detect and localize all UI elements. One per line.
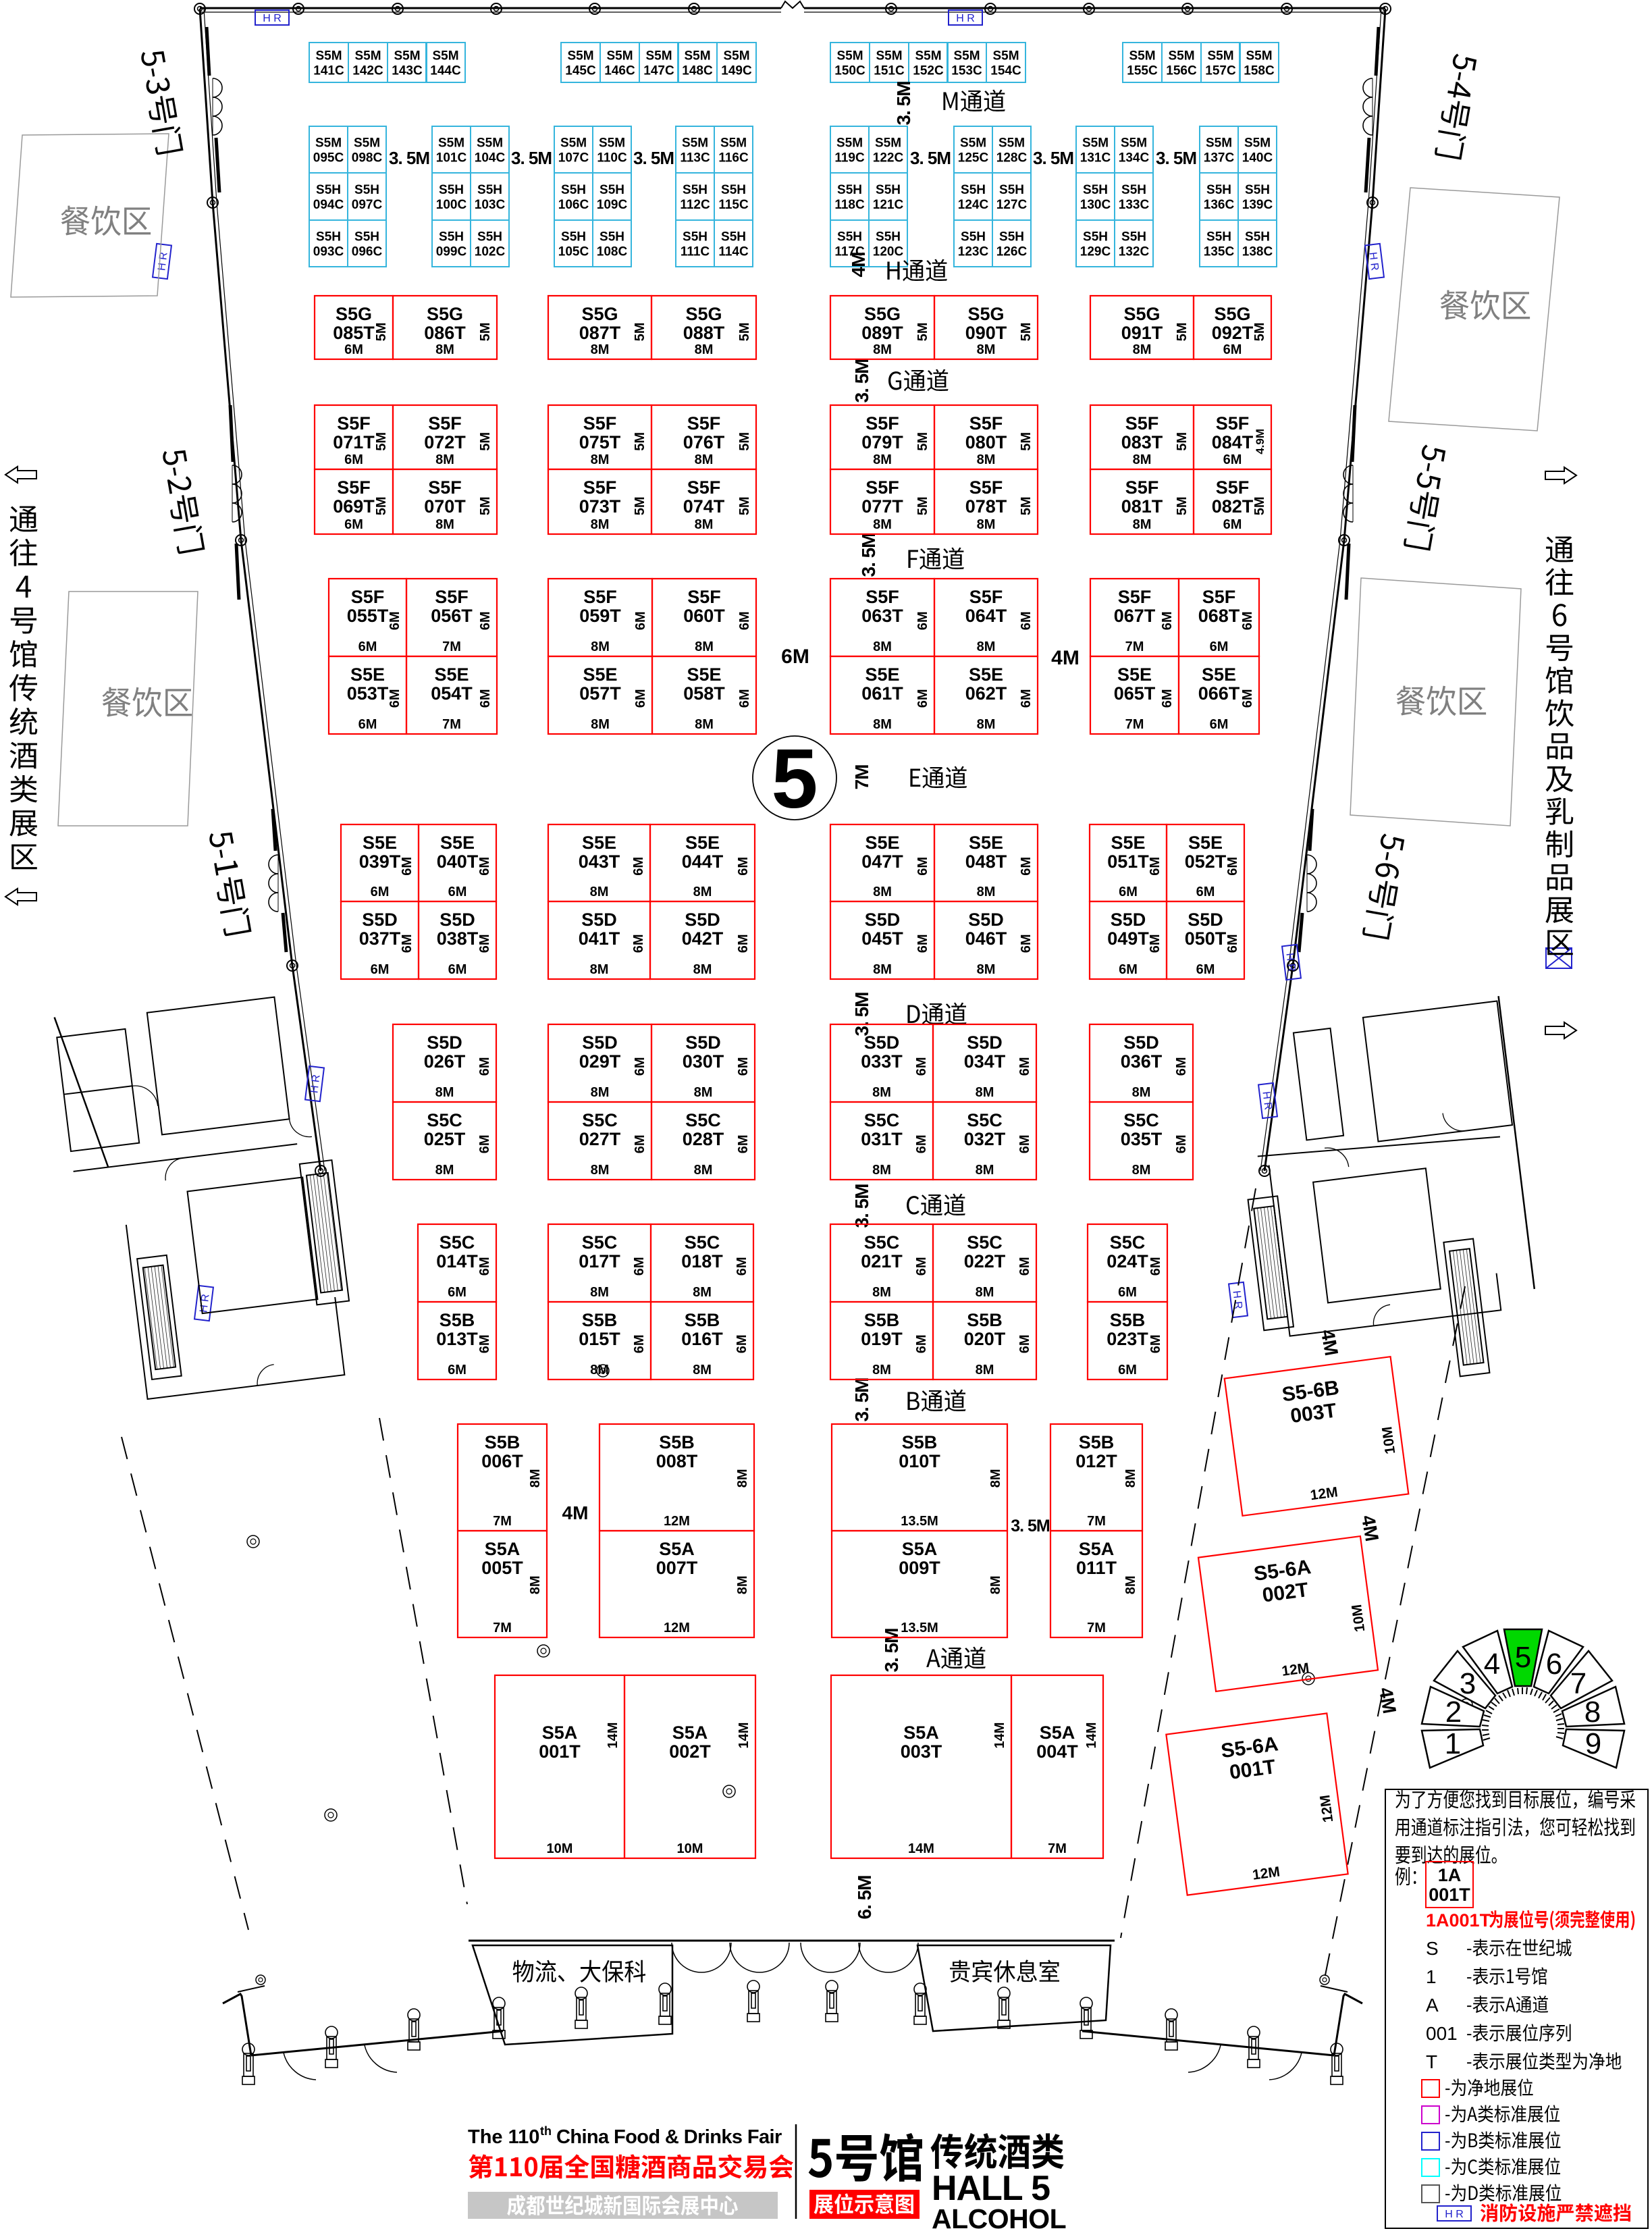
svg-text:8M: 8M	[591, 717, 610, 732]
svg-text:5M: 5M	[1252, 323, 1267, 342]
svg-text:108C: 108C	[597, 245, 628, 259]
svg-text:S5M: S5M	[477, 136, 503, 151]
svg-text:6M: 6M	[1174, 1134, 1189, 1153]
svg-text:143C: 143C	[392, 64, 423, 78]
svg-text:S5H: S5H	[683, 230, 708, 244]
svg-text:156C: 156C	[1166, 64, 1197, 78]
svg-text:056T: 056T	[431, 606, 473, 626]
svg-text:081T: 081T	[1121, 496, 1163, 517]
svg-text:4: 4	[1484, 1648, 1500, 1681]
svg-text:053T: 053T	[347, 683, 389, 704]
svg-text:057T: 057T	[579, 683, 621, 704]
svg-text:S5G: S5G	[581, 304, 618, 324]
svg-text:S5H: S5H	[721, 183, 746, 197]
svg-text:6M: 6M	[1160, 689, 1175, 708]
svg-text:S5E: S5E	[865, 664, 899, 685]
svg-text:S5F: S5F	[865, 587, 899, 607]
svg-text:S5H: S5H	[1206, 230, 1231, 244]
svg-text:S5F: S5F	[1118, 587, 1152, 607]
svg-text:122C: 122C	[873, 151, 904, 165]
svg-text:5M: 5M	[915, 496, 930, 515]
svg-text:5M: 5M	[915, 432, 930, 451]
svg-text:S5B: S5B	[685, 1310, 720, 1330]
svg-text:024T: 024T	[1107, 1251, 1148, 1271]
svg-text:S5M: S5M	[1206, 136, 1232, 151]
svg-text:8M: 8M	[695, 342, 714, 357]
svg-text:8M: 8M	[873, 885, 892, 899]
svg-text:6M: 6M	[1019, 689, 1034, 708]
svg-text:3. 5M: 3. 5M	[851, 1184, 872, 1228]
svg-text:074T: 074T	[683, 496, 725, 517]
svg-text:047T: 047T	[861, 851, 903, 872]
svg-text:S5M: S5M	[315, 136, 342, 151]
svg-text:8M: 8M	[591, 1163, 610, 1178]
svg-text:S5M: S5M	[560, 136, 587, 151]
svg-text:6M: 6M	[1196, 962, 1215, 977]
svg-text:S5H: S5H	[1245, 230, 1270, 244]
svg-text:10M: 10M	[677, 1841, 703, 1856]
svg-text:6M: 6M	[632, 1334, 647, 1353]
svg-text:S5F: S5F	[865, 477, 899, 498]
svg-text:6M: 6M	[915, 611, 930, 630]
svg-text:6M: 6M	[914, 1134, 929, 1153]
svg-text:134C: 134C	[1119, 151, 1150, 165]
svg-text:S5M: S5M	[599, 136, 625, 151]
svg-text:S5C: S5C	[427, 1110, 462, 1130]
svg-text:015T: 015T	[579, 1329, 620, 1349]
svg-text:6M: 6M	[736, 934, 751, 953]
svg-text:S5F: S5F	[865, 413, 899, 434]
svg-text:155C: 155C	[1127, 64, 1158, 78]
svg-text:S5E: S5E	[1111, 833, 1145, 853]
svg-text:5: 5	[1515, 1641, 1531, 1674]
svg-text:032T: 032T	[964, 1129, 1006, 1149]
svg-text:6M: 6M	[388, 611, 402, 630]
svg-text:S5M: S5M	[1246, 49, 1272, 63]
svg-text:011T: 011T	[1076, 1558, 1117, 1578]
svg-text:S5B: S5B	[1110, 1310, 1146, 1330]
svg-text:S5F: S5F	[969, 413, 1003, 434]
svg-text:5M: 5M	[478, 496, 493, 515]
svg-text:3. 5M: 3. 5M	[1033, 148, 1073, 168]
svg-text:13.5M: 13.5M	[901, 1514, 938, 1529]
svg-text:8M: 8M	[988, 1469, 1003, 1488]
svg-text:7M: 7M	[1125, 717, 1144, 732]
svg-text:129C: 129C	[1080, 245, 1111, 259]
svg-text:4.9M: 4.9M	[1254, 429, 1267, 454]
svg-text:S5H: S5H	[999, 230, 1024, 244]
svg-text:S5G: S5G	[336, 304, 372, 324]
svg-text:6M: 6M	[371, 962, 390, 977]
svg-text:039T: 039T	[359, 851, 401, 872]
svg-text:S5H: S5H	[439, 230, 464, 244]
svg-text:6M: 6M	[737, 689, 752, 708]
svg-text:S5B: S5B	[902, 1432, 938, 1452]
svg-text:S5M: S5M	[875, 136, 901, 151]
svg-text:025T: 025T	[424, 1129, 466, 1149]
svg-text:6M: 6M	[633, 689, 648, 708]
svg-text:080T: 080T	[965, 432, 1007, 452]
svg-text:5M: 5M	[633, 323, 647, 342]
svg-text:014T: 014T	[436, 1251, 478, 1271]
svg-text:S5H: S5H	[961, 230, 986, 244]
svg-text:123C: 123C	[958, 245, 989, 259]
svg-text:135C: 135C	[1204, 245, 1235, 259]
svg-text:S5H: S5H	[561, 230, 586, 244]
svg-text:S5A: S5A	[903, 1723, 939, 1743]
svg-text:S5H: S5H	[1245, 183, 1270, 197]
svg-text:5M: 5M	[633, 496, 647, 515]
svg-text:S5A: S5A	[902, 1539, 938, 1559]
svg-text:6M: 6M	[477, 857, 492, 876]
svg-text:150C: 150C	[834, 64, 865, 78]
svg-text:102C: 102C	[475, 245, 506, 259]
svg-text:S5M: S5M	[354, 49, 381, 63]
svg-text:14M: 14M	[908, 1841, 934, 1856]
svg-text:079T: 079T	[861, 432, 903, 452]
svg-text:S5M: S5M	[438, 136, 464, 151]
svg-text:6M: 6M	[1017, 1334, 1032, 1353]
svg-text:6M: 6M	[1148, 1334, 1163, 1353]
svg-text:010T: 010T	[899, 1451, 940, 1471]
svg-text:001T: 001T	[1429, 1885, 1470, 1905]
svg-text:6M: 6M	[448, 885, 467, 899]
svg-text:S5H: S5H	[1083, 183, 1108, 197]
svg-text:6M: 6M	[400, 857, 415, 876]
svg-text:058T: 058T	[683, 683, 725, 704]
svg-text:076T: 076T	[683, 432, 725, 452]
svg-text:031T: 031T	[861, 1129, 903, 1149]
svg-text:8: 8	[1584, 1696, 1601, 1729]
svg-text:S5F: S5F	[1216, 413, 1250, 434]
svg-text:H R: H R	[156, 251, 169, 271]
svg-text:5M: 5M	[633, 432, 647, 451]
svg-text:146C: 146C	[604, 64, 635, 78]
svg-text:S5E: S5E	[350, 664, 385, 685]
svg-text:6M: 6M	[344, 517, 363, 532]
svg-text:043T: 043T	[579, 851, 620, 872]
svg-text:6M: 6M	[1019, 934, 1034, 953]
svg-text:7M: 7M	[851, 765, 872, 790]
svg-text:S5C: S5C	[967, 1232, 1003, 1253]
svg-text:8M: 8M	[977, 962, 996, 977]
svg-text:S5D: S5D	[581, 910, 617, 930]
svg-text:104C: 104C	[475, 151, 506, 165]
svg-text:130C: 130C	[1080, 198, 1111, 212]
svg-text:S5D: S5D	[968, 910, 1004, 930]
svg-text:S5M: S5M	[567, 49, 593, 63]
svg-text:111C: 111C	[681, 245, 710, 259]
svg-text:118C: 118C	[834, 198, 865, 212]
svg-text:066T: 066T	[1198, 683, 1240, 704]
svg-text:S5C: S5C	[582, 1110, 618, 1130]
svg-text:8M: 8M	[977, 452, 996, 467]
svg-text:6M: 6M	[735, 1334, 749, 1353]
svg-text:6M: 6M	[477, 1334, 492, 1353]
svg-text:5M: 5M	[1175, 432, 1190, 451]
svg-text:S5G: S5G	[967, 304, 1004, 324]
svg-text:095C: 095C	[313, 151, 344, 165]
svg-text:S5E: S5E	[440, 833, 475, 853]
svg-text:5M: 5M	[1019, 432, 1034, 451]
svg-text:S5C: S5C	[864, 1110, 900, 1130]
svg-text:6M: 6M	[1017, 1057, 1032, 1076]
svg-text:5M: 5M	[1019, 496, 1034, 515]
svg-text:14M: 14M	[992, 1723, 1007, 1749]
svg-text:013T: 013T	[436, 1329, 478, 1349]
svg-text:12M: 12M	[664, 1514, 690, 1529]
svg-text:138C: 138C	[1242, 245, 1273, 259]
svg-text:6M: 6M	[1223, 452, 1242, 467]
svg-text:S5M: S5M	[1082, 136, 1109, 151]
svg-text:044T: 044T	[682, 851, 724, 872]
svg-text:048T: 048T	[965, 851, 1007, 872]
svg-text:S5M: S5M	[1207, 49, 1233, 63]
svg-text:147C: 147C	[643, 64, 674, 78]
svg-text:018T: 018T	[681, 1251, 723, 1271]
svg-text:084T: 084T	[1212, 432, 1254, 452]
svg-text:3. 5M: 3. 5M	[893, 81, 914, 125]
svg-text:131C: 131C	[1080, 151, 1111, 165]
svg-text:8M: 8M	[528, 1469, 543, 1488]
svg-text:8M: 8M	[435, 517, 454, 532]
svg-text:012T: 012T	[1075, 1451, 1117, 1471]
svg-text:096C: 096C	[352, 245, 383, 259]
svg-text:054T: 054T	[431, 683, 473, 704]
svg-text:H R: H R	[1283, 952, 1297, 972]
svg-text:8M: 8M	[976, 1363, 994, 1377]
svg-text:S5B: S5B	[864, 1310, 900, 1330]
svg-text:3: 3	[1460, 1667, 1476, 1700]
svg-text:S5D: S5D	[1188, 910, 1223, 930]
svg-text:8M: 8M	[1132, 1163, 1151, 1178]
svg-text:6: 6	[1546, 1648, 1562, 1681]
svg-text:S5A: S5A	[659, 1539, 695, 1559]
svg-text:033T: 033T	[861, 1051, 903, 1072]
svg-text:8M: 8M	[977, 639, 996, 654]
svg-text:106C: 106C	[558, 198, 589, 212]
svg-text:4M: 4M	[1051, 647, 1080, 669]
svg-text:HALL 5: HALL 5	[932, 2169, 1050, 2208]
svg-text:S5M: S5M	[315, 49, 342, 63]
svg-text:8M: 8M	[872, 1363, 891, 1377]
svg-text:1A001T: 1A001T	[1426, 1910, 1491, 1930]
svg-text:S5F: S5F	[428, 477, 462, 498]
svg-text:157C: 157C	[1205, 64, 1236, 78]
svg-text:6M: 6M	[1210, 717, 1229, 732]
svg-text:030T: 030T	[683, 1051, 724, 1072]
svg-text:S5B: S5B	[659, 1432, 695, 1452]
svg-text:S5H: S5H	[316, 183, 341, 197]
svg-text:6M: 6M	[1240, 689, 1255, 708]
svg-text:S5C: S5C	[685, 1110, 721, 1130]
svg-text:061T: 061T	[861, 683, 903, 704]
svg-text:6M: 6M	[1118, 1285, 1137, 1300]
svg-text:071T: 071T	[333, 432, 375, 452]
svg-text:3. 5M: 3. 5M	[511, 148, 552, 168]
svg-text:14M: 14M	[737, 1723, 751, 1749]
svg-text:4M: 4M	[562, 1502, 589, 1523]
svg-text:7M: 7M	[442, 639, 461, 654]
svg-text:6M: 6M	[915, 689, 930, 708]
svg-text:075T: 075T	[579, 432, 621, 452]
svg-text:3. 5M: 3. 5M	[858, 533, 879, 577]
svg-text:S5A: S5A	[1079, 1539, 1115, 1559]
svg-text:152C: 152C	[913, 64, 944, 78]
svg-text:S5F: S5F	[583, 587, 617, 607]
svg-text:6M: 6M	[914, 1057, 929, 1076]
svg-text:107C: 107C	[558, 151, 589, 165]
svg-text:068T: 068T	[1198, 606, 1240, 626]
svg-text:6M: 6M	[631, 857, 646, 876]
svg-text:S5G: S5G	[427, 304, 463, 324]
svg-text:8M: 8M	[695, 639, 714, 654]
svg-text:142C: 142C	[352, 64, 383, 78]
svg-text:S5F: S5F	[428, 413, 462, 434]
svg-text:S5E: S5E	[1202, 664, 1236, 685]
svg-text:S5M: S5M	[684, 49, 710, 63]
svg-text:S5D: S5D	[362, 910, 398, 930]
svg-text:005T: 005T	[481, 1558, 523, 1578]
svg-text:S5G: S5G	[685, 304, 722, 324]
svg-text:110C: 110C	[597, 151, 627, 165]
svg-text:6M: 6M	[914, 1257, 929, 1276]
svg-text:6M: 6M	[914, 1334, 929, 1353]
svg-text:S5M: S5M	[953, 49, 980, 63]
svg-text:7M: 7M	[493, 1514, 512, 1529]
svg-text:132C: 132C	[1119, 245, 1150, 259]
svg-text:8M: 8M	[591, 342, 610, 357]
svg-text:S5C: S5C	[439, 1232, 475, 1253]
svg-text:6M: 6M	[735, 1257, 749, 1276]
svg-text:5M: 5M	[374, 323, 389, 342]
svg-text:5M: 5M	[478, 432, 493, 451]
svg-text:091T: 091T	[1121, 323, 1163, 343]
svg-text:9: 9	[1585, 1727, 1601, 1760]
svg-text:119C: 119C	[834, 151, 865, 165]
svg-text:S5A: S5A	[672, 1723, 708, 1743]
svg-text:055T: 055T	[347, 606, 389, 626]
svg-text:5M: 5M	[737, 496, 752, 515]
svg-text:S5E: S5E	[1117, 664, 1152, 685]
svg-text:153C: 153C	[951, 64, 982, 78]
svg-text:8M: 8M	[435, 1163, 454, 1178]
svg-text:6M: 6M	[448, 1363, 467, 1377]
svg-text:6M: 6M	[1118, 1363, 1137, 1377]
svg-text:4M: 4M	[848, 253, 869, 278]
svg-text:S5E: S5E	[1188, 833, 1223, 853]
svg-text:6M: 6M	[631, 934, 646, 953]
svg-text:S5D: S5D	[1111, 910, 1146, 930]
svg-text:8M: 8M	[873, 639, 892, 654]
svg-text:038T: 038T	[437, 928, 479, 949]
svg-text:5M: 5M	[1252, 496, 1267, 515]
svg-text:6M: 6M	[1017, 1134, 1032, 1153]
svg-text:S5D: S5D	[582, 1032, 618, 1053]
svg-text:S5D: S5D	[685, 910, 720, 930]
svg-text:S5A: S5A	[485, 1539, 521, 1559]
svg-text:S5H: S5H	[439, 183, 464, 197]
svg-text:S5A: S5A	[1040, 1723, 1075, 1743]
svg-text:6M: 6M	[477, 1134, 492, 1153]
svg-text:th: th	[540, 2124, 552, 2138]
svg-text:S5E: S5E	[583, 664, 617, 685]
svg-text:3. 5M: 3. 5M	[633, 148, 674, 168]
svg-text:6M: 6M	[633, 1134, 647, 1153]
svg-text:6M: 6M	[1017, 1257, 1032, 1276]
svg-text:S5M: S5M	[723, 49, 749, 63]
svg-text:S5F: S5F	[337, 413, 371, 434]
svg-text:6M: 6M	[915, 934, 930, 953]
svg-text:137C: 137C	[1204, 151, 1235, 165]
svg-text:6M: 6M	[448, 1285, 467, 1300]
svg-text:S5C: S5C	[967, 1110, 1003, 1130]
svg-text:S5C: S5C	[685, 1232, 720, 1253]
svg-text:6M: 6M	[478, 689, 493, 708]
svg-text:8M: 8M	[591, 452, 610, 467]
svg-text:S5H: S5H	[961, 183, 986, 197]
svg-text:017T: 017T	[579, 1251, 620, 1271]
svg-text:S5M: S5M	[1121, 136, 1147, 151]
svg-text:S5H: S5H	[477, 183, 502, 197]
svg-text:8M: 8M	[1123, 1575, 1138, 1594]
svg-text:046T: 046T	[965, 928, 1007, 949]
svg-text:S5M: S5M	[836, 49, 863, 63]
svg-text:8M: 8M	[695, 452, 714, 467]
svg-text:6M: 6M	[1160, 611, 1175, 630]
svg-text:113C: 113C	[680, 151, 710, 165]
svg-text:S5F: S5F	[583, 477, 617, 498]
svg-text:S5M: S5M	[606, 49, 633, 63]
svg-text:6M: 6M	[448, 962, 467, 977]
svg-text:6M: 6M	[1223, 342, 1242, 357]
svg-text:049T: 049T	[1107, 928, 1149, 949]
svg-text:ALCOHOL: ALCOHOL	[932, 2203, 1066, 2233]
svg-text:023T: 023T	[1107, 1329, 1148, 1349]
svg-text:1: 1	[1426, 1966, 1437, 1987]
svg-text:8M: 8M	[976, 1085, 994, 1100]
svg-text:S5H: S5H	[999, 183, 1024, 197]
svg-text:149C: 149C	[721, 64, 752, 78]
svg-text:8M: 8M	[693, 962, 712, 977]
svg-text:8M: 8M	[977, 885, 996, 899]
svg-text:020T: 020T	[964, 1329, 1006, 1349]
svg-text:064T: 064T	[965, 606, 1007, 626]
svg-text:8M: 8M	[591, 639, 610, 654]
svg-text:5M: 5M	[1019, 323, 1034, 342]
svg-text:115C: 115C	[718, 198, 749, 212]
svg-text:S5F: S5F	[687, 587, 721, 607]
svg-text:027T: 027T	[579, 1129, 621, 1149]
svg-text:8M: 8M	[976, 1285, 994, 1300]
svg-text:S5B: S5B	[1079, 1432, 1115, 1452]
svg-text:8M: 8M	[873, 517, 892, 532]
svg-text:S5F: S5F	[969, 587, 1003, 607]
svg-text:5: 5	[772, 733, 818, 826]
svg-text:5M: 5M	[737, 323, 752, 342]
svg-text:6M: 6M	[388, 689, 402, 708]
svg-text:H R: H R	[1366, 251, 1380, 271]
svg-text:S5M: S5M	[998, 136, 1025, 151]
svg-text:124C: 124C	[958, 198, 989, 212]
svg-text:036T: 036T	[1121, 1051, 1163, 1072]
svg-text:151C: 151C	[874, 64, 905, 78]
svg-text:S5D: S5D	[865, 910, 901, 930]
svg-text:125C: 125C	[958, 151, 989, 165]
svg-text:8M: 8M	[977, 342, 996, 357]
svg-text:8M: 8M	[693, 1363, 712, 1377]
svg-text:100C: 100C	[436, 198, 467, 212]
